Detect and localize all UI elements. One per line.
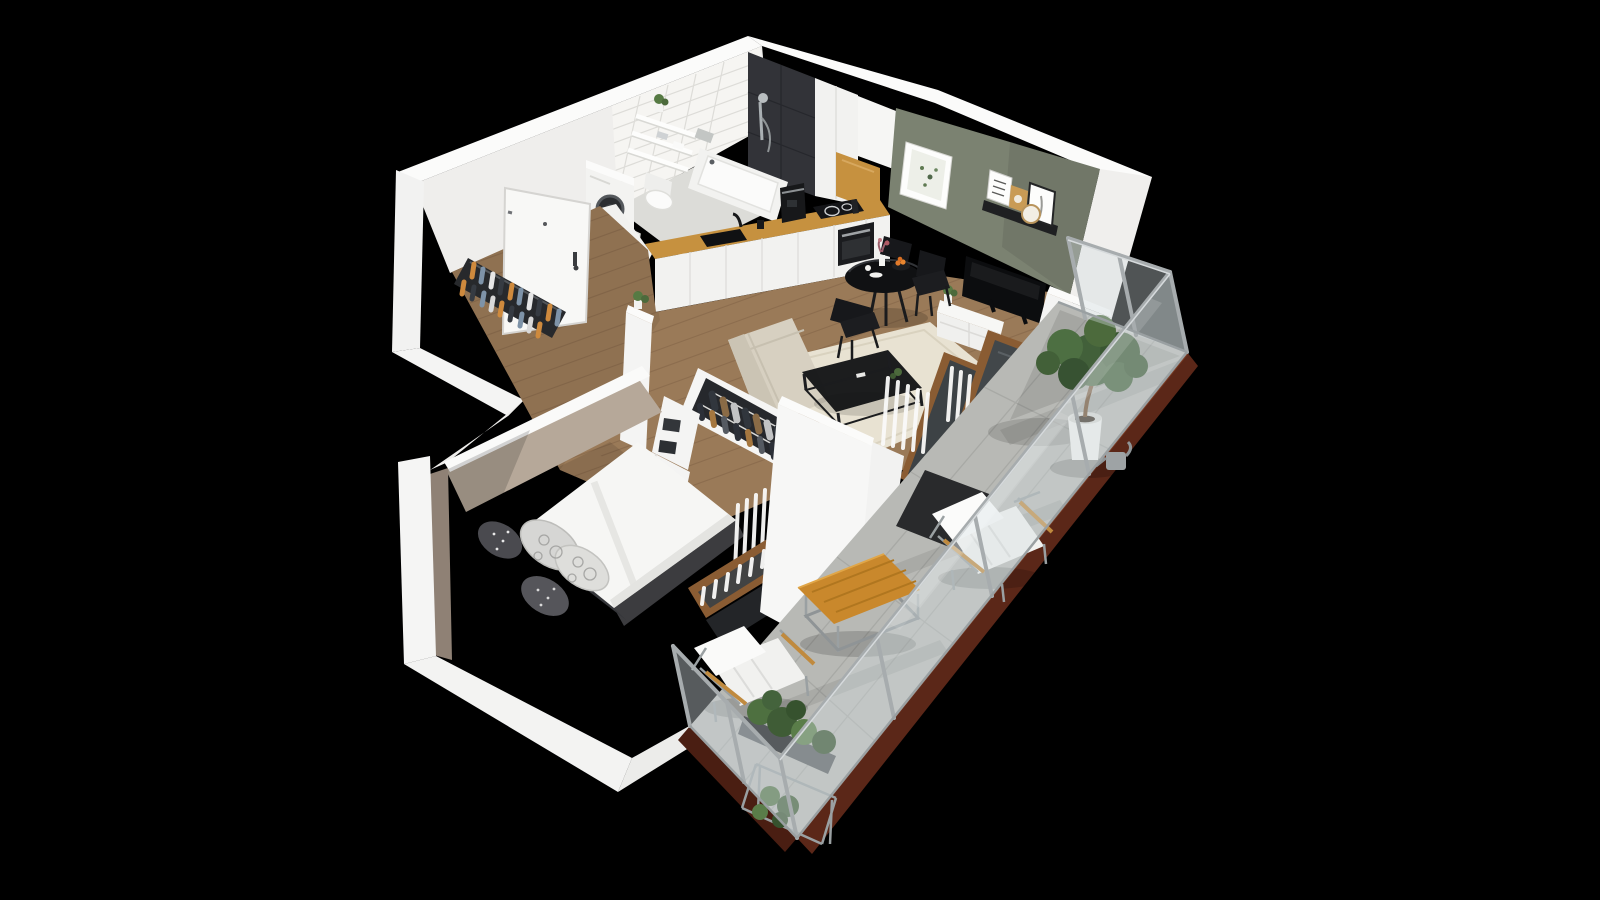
apartment-render [0, 0, 1600, 900]
storage-box-2 [658, 440, 677, 454]
bedroom-outer-band-south [404, 656, 632, 792]
half-wall-plant-pot [634, 300, 642, 309]
upper-cabinet-white [858, 96, 896, 170]
bedroom-outer-band-west [398, 456, 436, 664]
plate [870, 272, 883, 277]
table-vase [879, 255, 885, 266]
round-mirror [1022, 205, 1040, 223]
entry-left-wall-band [392, 170, 424, 352]
shelf-plant-pot [655, 103, 663, 112]
utensil-holder [757, 220, 764, 229]
storage-box [662, 418, 681, 432]
cup [865, 265, 871, 271]
floorplan-canvas [0, 0, 1600, 900]
coffee-machine [780, 183, 806, 223]
peephole [543, 222, 547, 226]
